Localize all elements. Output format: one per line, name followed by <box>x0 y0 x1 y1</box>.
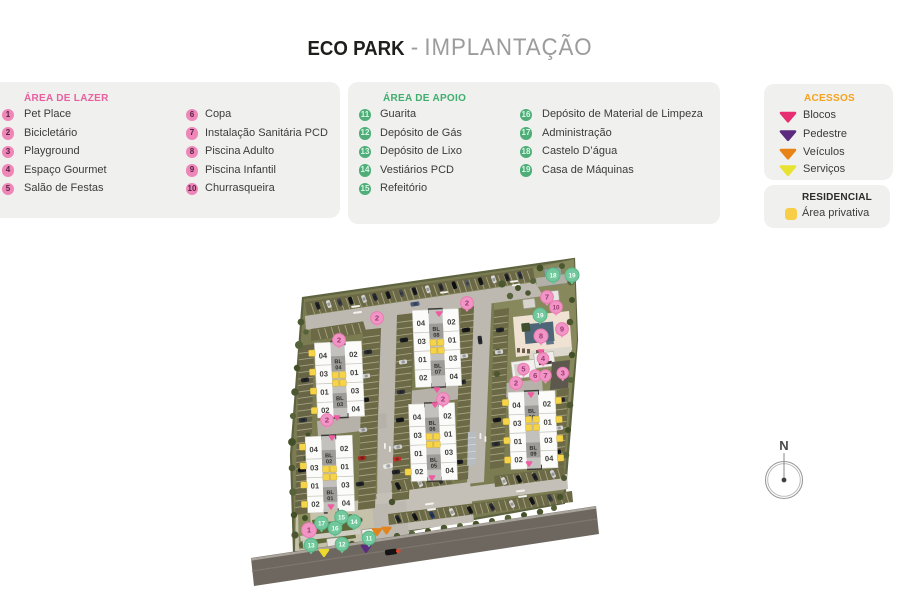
svg-text:13: 13 <box>307 542 315 549</box>
svg-text:9: 9 <box>560 325 564 334</box>
svg-text:06: 06 <box>429 427 435 433</box>
svg-text:01: 01 <box>444 429 454 438</box>
svg-text:03: 03 <box>449 354 458 363</box>
svg-text:04: 04 <box>342 498 352 507</box>
svg-text:01: 01 <box>311 481 321 490</box>
svg-text:04: 04 <box>413 413 423 422</box>
svg-text:2: 2 <box>325 416 329 425</box>
svg-text:17: 17 <box>318 520 326 527</box>
svg-text:02: 02 <box>415 467 424 476</box>
svg-text:11: 11 <box>366 535 373 542</box>
svg-text:2: 2 <box>337 336 341 345</box>
svg-text:02: 02 <box>340 444 349 453</box>
svg-text:01: 01 <box>327 496 333 502</box>
svg-text:01: 01 <box>418 355 428 364</box>
svg-text:04: 04 <box>449 372 459 381</box>
svg-text:04: 04 <box>335 365 342 371</box>
svg-text:03: 03 <box>417 337 426 346</box>
svg-text:16: 16 <box>331 525 339 532</box>
svg-text:7: 7 <box>545 293 549 302</box>
svg-text:19: 19 <box>568 272 576 279</box>
svg-text:6: 6 <box>533 371 537 380</box>
svg-text:03: 03 <box>319 369 328 378</box>
svg-text:04: 04 <box>309 445 319 454</box>
svg-text:04: 04 <box>512 401 522 410</box>
svg-text:04: 04 <box>545 454 555 463</box>
svg-text:04: 04 <box>319 351 329 360</box>
svg-text:02: 02 <box>543 399 552 408</box>
svg-text:19: 19 <box>536 312 544 319</box>
svg-text:04: 04 <box>445 466 455 475</box>
svg-text:2: 2 <box>375 314 379 323</box>
svg-text:02: 02 <box>447 317 456 326</box>
svg-text:2: 2 <box>441 395 445 404</box>
svg-text:01: 01 <box>543 418 553 427</box>
svg-text:14: 14 <box>350 519 358 526</box>
svg-text:09: 09 <box>530 452 536 458</box>
svg-text:2: 2 <box>514 379 518 388</box>
svg-text:03: 03 <box>337 402 343 408</box>
svg-text:04: 04 <box>416 319 426 328</box>
svg-text:18: 18 <box>549 272 557 279</box>
svg-text:01: 01 <box>340 462 350 471</box>
svg-text:05: 05 <box>431 464 437 470</box>
svg-text:15: 15 <box>338 514 346 521</box>
svg-text:03: 03 <box>413 431 422 440</box>
svg-text:01: 01 <box>448 335 458 344</box>
svg-text:01: 01 <box>350 368 360 377</box>
svg-text:10: 10 <box>552 304 560 311</box>
svg-text:02: 02 <box>349 350 358 359</box>
svg-text:07: 07 <box>435 370 441 376</box>
svg-text:02: 02 <box>514 455 523 464</box>
svg-text:02: 02 <box>326 459 332 465</box>
svg-text:01: 01 <box>320 387 330 396</box>
svg-text:04: 04 <box>351 404 361 413</box>
svg-text:03: 03 <box>544 436 553 445</box>
svg-text:03: 03 <box>341 480 350 489</box>
svg-text:12: 12 <box>338 541 346 548</box>
svg-text:03: 03 <box>310 463 319 472</box>
svg-text:03: 03 <box>351 386 360 395</box>
svg-text:01: 01 <box>414 449 424 458</box>
svg-text:08: 08 <box>433 333 439 339</box>
svg-text:3: 3 <box>561 369 565 378</box>
svg-text:03: 03 <box>513 419 522 428</box>
svg-text:N: N <box>779 438 788 453</box>
svg-text:8: 8 <box>539 332 543 341</box>
svg-text:02: 02 <box>311 500 320 509</box>
svg-text:7: 7 <box>543 371 547 380</box>
svg-text:02: 02 <box>419 373 428 382</box>
svg-text:01: 01 <box>514 437 524 446</box>
svg-text:2: 2 <box>465 299 469 308</box>
svg-text:03: 03 <box>445 448 454 457</box>
svg-text:02: 02 <box>443 411 452 420</box>
